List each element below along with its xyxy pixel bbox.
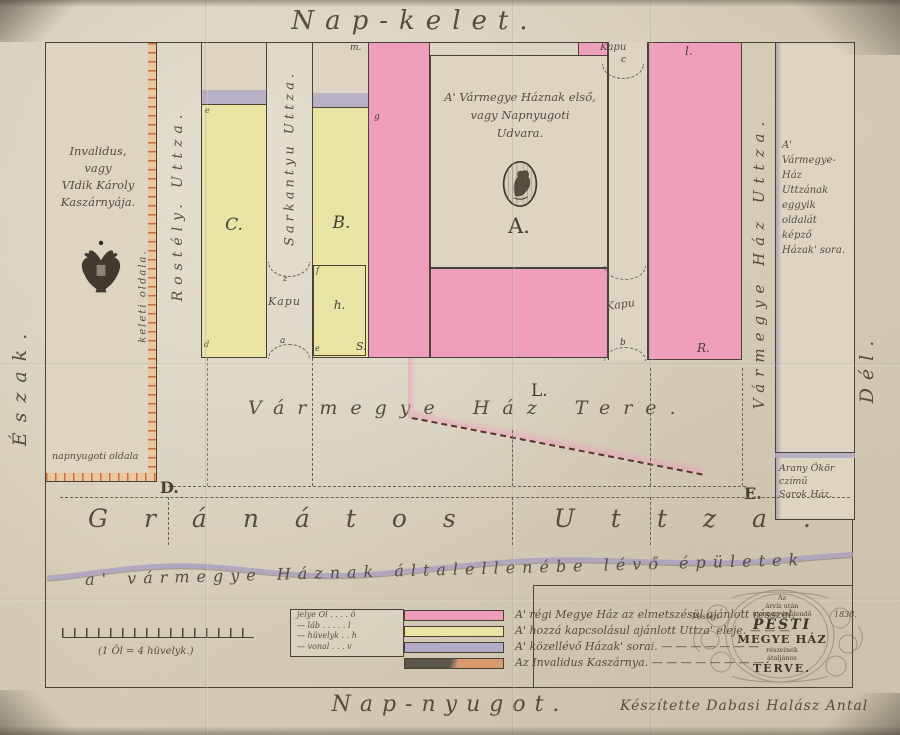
units-row: — hüvelyk . . h: [291, 631, 403, 642]
purple-shading: [202, 90, 266, 104]
legend-swatch-invalidus: [404, 658, 504, 669]
houses-row-caption: A' Vármegye-Ház Uttzának eggyik oldalát …: [782, 138, 848, 258]
legend-swatch-yellow: [404, 626, 504, 637]
invalidus-barracks-block: Invalidus, vagy VIdik Károly Kaszárnyája…: [45, 42, 157, 482]
brick-hatch-east-edge: [148, 43, 156, 474]
cartouche-line: árvíz után: [730, 602, 834, 610]
courtyard-caption: A' Vármegye Háznak első, vagy Napnyugoti…: [437, 88, 603, 142]
gate-label-sarkantyu: Kapu: [268, 295, 301, 308]
marker-z: z: [283, 274, 287, 283]
compass-south-label: Dél.: [856, 333, 878, 404]
scale-bar-caption: (1 Öl = 4 hüvelyk.): [98, 646, 194, 657]
corner-marker-E: E.: [744, 484, 762, 503]
passage-strip: [608, 42, 648, 360]
photo-edge-shadow: [0, 726, 900, 735]
double-eagle-emblem: [79, 238, 123, 294]
legend-swatch-pink: [404, 610, 504, 621]
dashed-line: [60, 497, 850, 498]
units-row: jelye Öl . . . . ö: [291, 610, 403, 621]
street-label-rostely: Rostély. Uttza.: [170, 109, 186, 302]
marker-R: R.: [697, 341, 710, 355]
dashed-line: [168, 486, 746, 487]
compass-west-label: Nap-nyugot.: [305, 692, 595, 717]
c-block-label: C.: [202, 215, 266, 235]
units-key-box: jelye Öl . . . . ö — láb . . . . . l — h…: [290, 609, 404, 657]
c-block: C. e d: [201, 104, 267, 358]
street-label-sarkantyu: Sarkantyu Uttza.: [283, 70, 298, 246]
units-row: — vonal . . . v: [291, 642, 403, 653]
b-block-label: B.: [313, 213, 370, 233]
marker-f: f: [316, 266, 319, 275]
old-county-hall-west-wing: [368, 42, 430, 358]
marker-e: e: [315, 344, 320, 353]
photo-edge-shadow: [0, 0, 95, 42]
marker-g: g: [374, 112, 380, 122]
marker-m: m.: [350, 43, 361, 53]
paper-crease: [205, 0, 208, 735]
h-subblock-label: h.: [314, 298, 365, 312]
invalidus-west-side-label: napnyugoti oldala: [52, 451, 138, 462]
old-county-hall-south-wing: [430, 268, 608, 358]
gate-label-north: Kapu: [600, 42, 626, 53]
old-county-hall-east-strip: l. R.: [648, 42, 742, 360]
marker-l: l.: [685, 44, 693, 58]
maker-signature: Készítette Dabasi Halász Antal: [620, 698, 868, 714]
cartouche-year: 1838.: [834, 610, 857, 619]
paper-crease: [650, 0, 653, 735]
courtyard-A: A' Vármegye Háznak első, vagy Napnyugoti…: [430, 55, 608, 268]
photo-edge-shadow: [0, 690, 85, 735]
cartouche-frame-top: [533, 585, 853, 586]
scale-bar: [62, 628, 254, 638]
legend-swatch-purple: [404, 642, 504, 653]
dashed-line: [742, 368, 743, 486]
cartouche-title-megyehaz: MEGYE HÁZ: [730, 633, 834, 646]
corner-marker-D: D.: [160, 478, 179, 497]
paper-crease: [512, 0, 515, 735]
houses-row-block: A' Vármegye-Ház Uttzának eggyik oldalát …: [775, 42, 855, 520]
corner-house-caption: Arany Ökör czímű Sarok Ház.: [779, 462, 851, 501]
street-label-granatos: Gránátos Uttza.: [88, 504, 847, 533]
scanned-plan-1838: Nap-kelet. Nap-nyugot. Észak. Dél. Inval…: [0, 0, 900, 735]
marker-S: S.: [356, 340, 367, 353]
paper-crease: [0, 598, 900, 601]
units-row: — láb . . . . . l: [291, 621, 403, 632]
courtyard-label: A.: [431, 214, 607, 238]
invalidus-caption: Invalidus, vagy VIdik Károly Kaszárnyája…: [50, 143, 146, 211]
purple-shading: [775, 453, 855, 458]
compass-north-label: Észak.: [9, 324, 31, 447]
cartouche-place: Pesten: [692, 612, 719, 621]
c-block-street-head: [201, 42, 267, 105]
dashed-line: [312, 358, 313, 486]
lion-emblem: [501, 159, 539, 209]
square-label-tere: Vármegye Ház Tere.: [248, 397, 689, 419]
demolition-line-shading: [408, 358, 417, 418]
cartouche-title-pesti: PESTI: [730, 618, 834, 633]
cartouche-line: átaljános: [730, 654, 834, 662]
invalidus-east-side-label: keleti oldala.: [138, 249, 149, 342]
b-block-street-head: [312, 42, 371, 108]
purple-shading: [313, 93, 370, 107]
paper-crease: [0, 363, 900, 366]
cartouche-text: Az árvíz után újonnan épülendő PESTI MEG…: [730, 594, 834, 675]
cartouche-line: részeinek: [730, 646, 834, 654]
brick-hatch-south-edge: [46, 473, 156, 481]
cartouche-title-terve: TÉRVE.: [730, 662, 834, 675]
compass-east-label: Nap-kelet.: [270, 6, 560, 36]
